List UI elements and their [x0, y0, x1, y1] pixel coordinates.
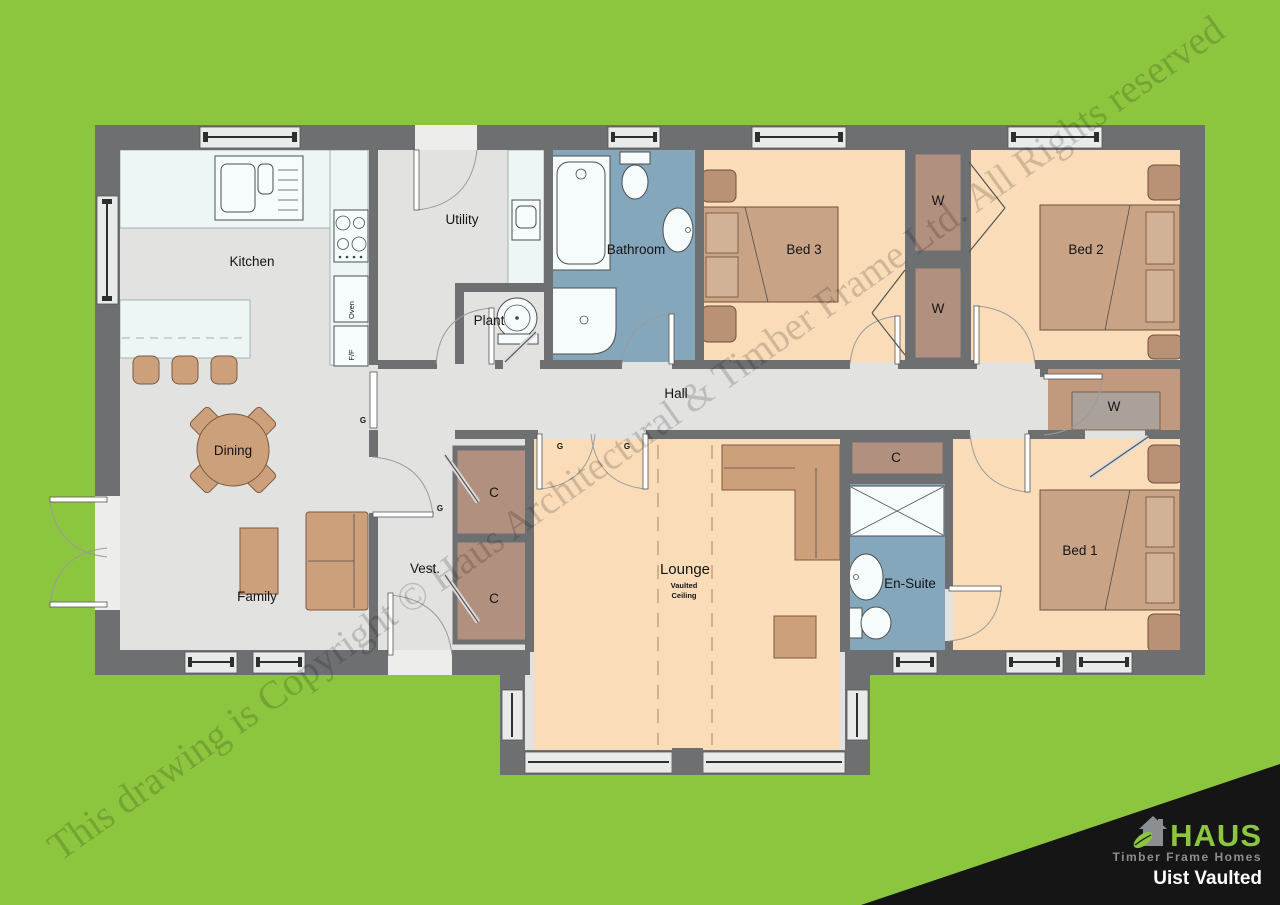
appliance-label-ff: F/F: [347, 349, 356, 361]
room-label-cupboard2: C: [489, 485, 499, 500]
window: [847, 690, 868, 740]
french-door-leaf: [50, 602, 107, 607]
lounge-sub-label: Vaulted: [671, 581, 698, 590]
bathroom-door: [669, 314, 674, 364]
utility-fittings: [508, 150, 544, 290]
ensuite-door: [949, 586, 1001, 591]
glazed-screen: [525, 752, 672, 773]
bedside-table: [1148, 165, 1182, 200]
window: [185, 652, 237, 673]
bedside-table: [1148, 614, 1182, 652]
window: [608, 127, 660, 148]
room-label-bed1: Bed 1: [1062, 543, 1097, 558]
hob: [334, 210, 368, 262]
stool: [172, 356, 198, 384]
bedside-table: [702, 170, 736, 202]
room-label-lounge: Lounge: [660, 561, 710, 578]
window: [893, 652, 937, 673]
french-door-opening: [95, 496, 120, 610]
room-label-family: Family: [237, 589, 277, 604]
coffee-table: [240, 528, 278, 594]
room-label-bed2: Bed 2: [1068, 242, 1103, 257]
washbasin: [663, 208, 693, 252]
glazed-marker: G: [360, 416, 366, 425]
bedside-table: [1148, 445, 1182, 483]
shower: [552, 288, 616, 354]
room-label-ensuite: En-Suite: [884, 576, 936, 591]
room-label-cupboard1: C: [891, 450, 901, 465]
logo-tagline: Timber Frame Homes: [1113, 850, 1263, 864]
room-label-bed3: Bed 3: [786, 242, 821, 257]
window: [752, 127, 846, 148]
glazed-screen: [703, 752, 845, 773]
glazed-marker: G: [437, 504, 443, 513]
window: [1076, 652, 1132, 673]
vestibule-door: [373, 512, 433, 517]
bedside-table: [702, 306, 736, 342]
room-label-bathroom: Bathroom: [607, 242, 666, 257]
plan-name: Uist Vaulted: [1153, 868, 1262, 889]
island: [120, 300, 250, 358]
lounge-sub-label: Ceiling: [671, 591, 696, 600]
washbasin: [849, 554, 883, 600]
room-label-utility: Utility: [446, 212, 479, 227]
appliance-label-oven: Oven: [347, 301, 356, 319]
mullion-pier: [672, 748, 703, 775]
drawing-canvas: Kitchen Utility Plant Bathroom Bed 3 W W…: [0, 0, 1280, 905]
bed2-door: [974, 306, 979, 364]
room-label-dining: Dining: [214, 443, 252, 458]
floor-plan: Kitchen Utility Plant Bathroom Bed 3 W W…: [0, 0, 1280, 905]
toilet: [620, 152, 650, 164]
room-label-wardrobe2: W: [932, 301, 945, 316]
ottoman: [774, 616, 816, 658]
window: [502, 690, 523, 740]
front-door-opening: [388, 650, 452, 675]
bed3-door: [895, 316, 900, 364]
room-label-walkin-wardrobe: W: [1108, 399, 1121, 414]
room-label-cupboard3: C: [489, 591, 499, 606]
french-door-leaf: [50, 497, 107, 502]
bedside-table: [1148, 335, 1182, 359]
bed1-door: [1025, 434, 1030, 492]
toilet: [848, 608, 862, 638]
utility-door-opening: [415, 125, 477, 150]
logo-brand: HAUS: [1170, 818, 1262, 853]
window: [97, 196, 118, 304]
glazed-marker: G: [557, 442, 563, 451]
stool: [133, 356, 159, 384]
room-label-kitchen: Kitchen: [229, 254, 274, 269]
room-label-plant: Plant: [474, 313, 505, 328]
family-glazed-door: [370, 372, 377, 428]
walkin-wardrobe-door: [1044, 374, 1102, 379]
stool: [211, 356, 237, 384]
window: [200, 127, 300, 148]
window: [1006, 652, 1063, 673]
logo-block: HAUS Timber Frame Homes Uist Vaulted: [861, 764, 1280, 905]
utility-external-door: [414, 150, 419, 210]
